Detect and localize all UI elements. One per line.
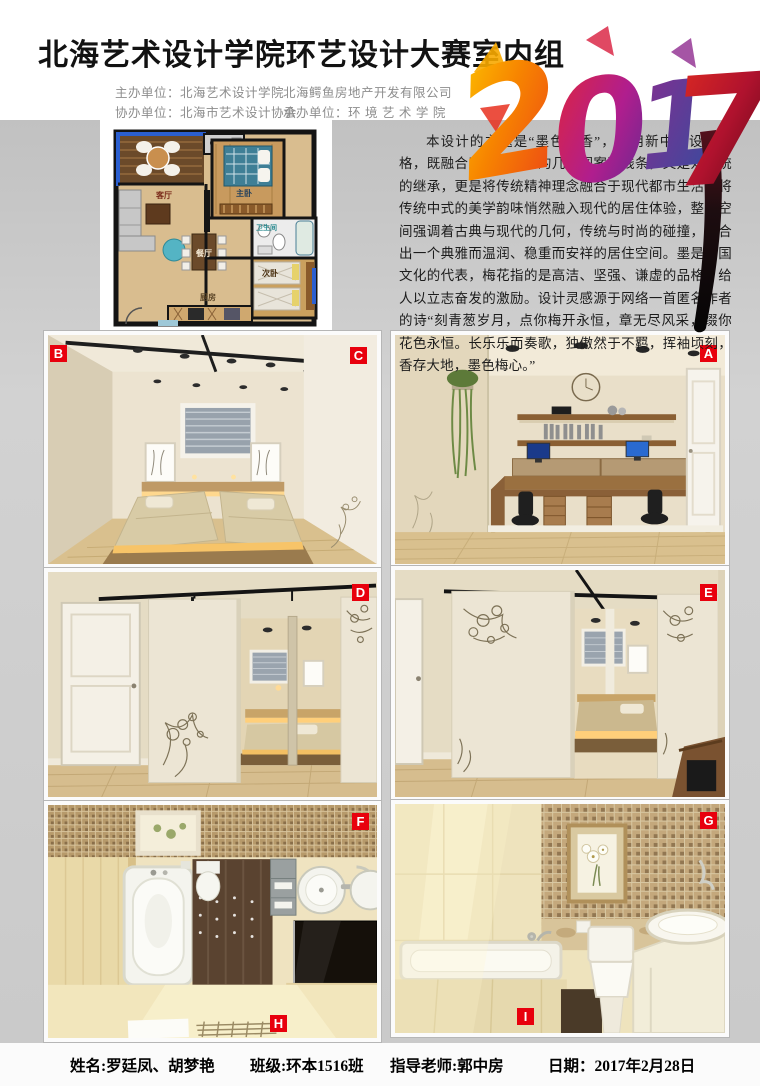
- sliding-panel-right: [341, 597, 377, 782]
- photo-marker-d: D: [352, 584, 369, 601]
- advisor-name: 指导老师:郭中房: [390, 1054, 504, 1076]
- render-bathroom-top-view: F H: [44, 801, 381, 1042]
- class-name: 班级:环本1516班: [250, 1054, 364, 1076]
- render-sliding-screens-1: D: [44, 568, 381, 801]
- flower-picture: [569, 825, 626, 901]
- developer-line: 北海鳄鱼房地产开发有限公司: [283, 82, 452, 101]
- organizer-line: 主办单位：北海艺术设计学院: [115, 82, 284, 101]
- floorplan-image: 客厅 餐厅 主卧 卫生间 次卧 厨房: [112, 128, 320, 332]
- photo-marker-i: I: [517, 1008, 534, 1025]
- photo-marker-g: G: [700, 812, 717, 829]
- render-sliding-screens-2: E: [391, 566, 729, 801]
- page-title: 北海艺术设计学院环艺设计大赛室内组: [38, 30, 565, 74]
- label-bathroom: 卫生间: [256, 223, 277, 232]
- label-dining-room: 餐厅: [195, 248, 212, 258]
- footer: 姓名:罗廷凤、胡梦艳 班级:环本1516班 指导老师:郭中房 日期：2017年2…: [0, 1043, 760, 1086]
- student-names: 姓名:罗廷凤、胡梦艳: [70, 1054, 215, 1076]
- undertaker-line: 承办单位：环 境 艺 术 学 院: [283, 102, 446, 121]
- co-organizer-line: 协办单位：北海市艺术设计协会: [115, 102, 297, 121]
- render-bedroom-wide: B C: [44, 331, 381, 568]
- header: 北海艺术设计学院环艺设计大赛室内组 主办单位：北海艺术设计学院 北海鳄鱼房地产开…: [0, 0, 760, 120]
- submission-date: 日期：2017年2月28日: [548, 1054, 695, 1076]
- photo-marker-c: C: [350, 347, 367, 364]
- sink-counter: [633, 910, 725, 1033]
- label-master-bedroom: 主卧: [236, 188, 252, 198]
- label-kitchen: 厨房: [200, 292, 216, 302]
- label-living-room: 客厅: [155, 190, 172, 200]
- poster-page: 北海艺术设计学院环艺设计大赛室内组 主办单位：北海艺术设计学院 北海鳄鱼房地产开…: [0, 0, 760, 1086]
- photo-marker-e: E: [700, 584, 717, 601]
- label-second-bedroom: 次卧: [262, 268, 278, 278]
- sliding-panel-left: [452, 591, 574, 777]
- floorplan-card: 客厅 餐厅 主卧 卫生间 次卧 厨房: [100, 120, 332, 344]
- photo-marker-h: H: [270, 1015, 287, 1032]
- photo-marker-b: B: [50, 345, 67, 362]
- render-bathroom-perspective: G I: [391, 800, 729, 1037]
- photo-marker-f: F: [352, 813, 369, 830]
- sliding-panel-left: [149, 599, 241, 782]
- design-description: 本设计的主题是“墨色梅香”，采用新中式设计风格，既融合了现代简约的几何图案及线条…: [399, 131, 732, 377]
